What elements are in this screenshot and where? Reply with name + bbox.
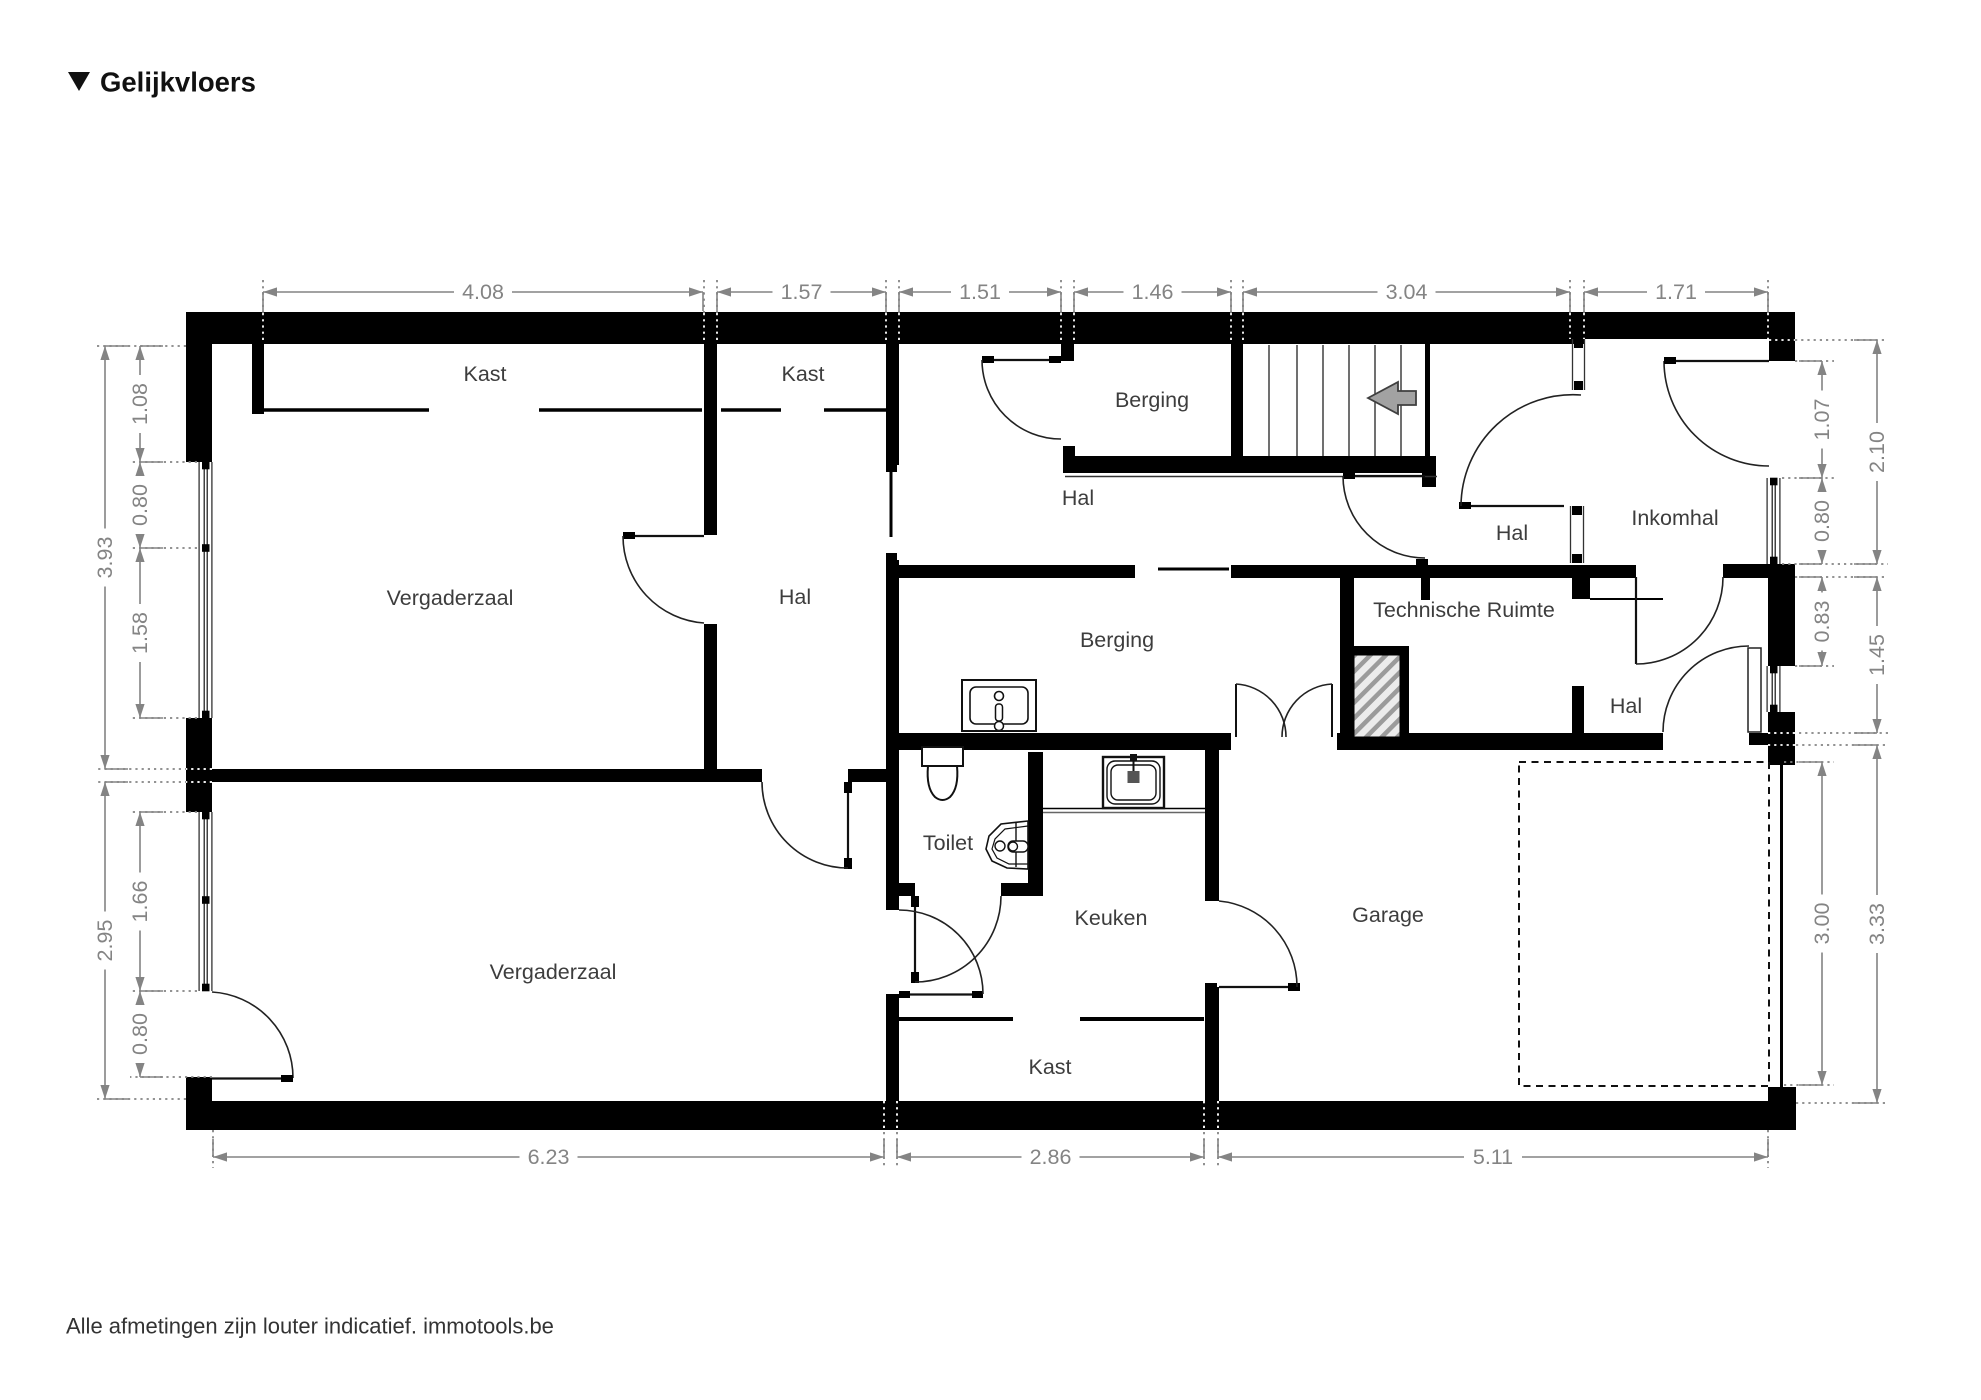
svg-text:0.80: 0.80	[1810, 500, 1834, 542]
svg-text:3.00: 3.00	[1810, 903, 1834, 945]
svg-text:1.45: 1.45	[1865, 634, 1889, 676]
svg-text:1.07: 1.07	[1810, 399, 1834, 441]
svg-text:3.33: 3.33	[1865, 903, 1889, 945]
svg-text:3.04: 3.04	[1386, 280, 1428, 304]
svg-text:Kast: Kast	[1028, 1055, 1071, 1079]
svg-text:Hal: Hal	[1610, 694, 1642, 718]
svg-text:Vergaderzaal: Vergaderzaal	[490, 960, 617, 984]
svg-text:2.10: 2.10	[1865, 431, 1889, 473]
svg-text:4.08: 4.08	[462, 280, 504, 304]
svg-text:Garage: Garage	[1352, 903, 1424, 927]
svg-text:Gelijkvloers: Gelijkvloers	[100, 67, 256, 98]
svg-text:1.08: 1.08	[128, 383, 152, 425]
svg-text:Kast: Kast	[781, 362, 824, 386]
svg-text:1.66: 1.66	[128, 881, 152, 923]
svg-text:3.93: 3.93	[93, 537, 117, 579]
svg-text:Hal: Hal	[1062, 486, 1094, 510]
svg-text:0.80: 0.80	[128, 1013, 152, 1055]
svg-text:1.58: 1.58	[128, 612, 152, 654]
svg-text:1.46: 1.46	[1132, 280, 1174, 304]
svg-text:Toilet: Toilet	[923, 831, 973, 855]
svg-text:Vergaderzaal: Vergaderzaal	[387, 586, 514, 610]
svg-text:2.86: 2.86	[1030, 1145, 1072, 1169]
svg-text:Keuken: Keuken	[1075, 906, 1148, 930]
svg-text:Berging: Berging	[1080, 628, 1154, 652]
svg-text:Inkomhal: Inkomhal	[1631, 506, 1718, 530]
svg-text:0.83: 0.83	[1810, 601, 1834, 643]
svg-text:5.11: 5.11	[1473, 1145, 1513, 1169]
svg-text:1.57: 1.57	[781, 280, 823, 304]
svg-text:0.80: 0.80	[128, 484, 152, 526]
svg-text:Berging: Berging	[1115, 388, 1189, 412]
svg-text:2.95: 2.95	[93, 920, 117, 962]
svg-text:Kast: Kast	[463, 362, 506, 386]
svg-text:1.51: 1.51	[959, 280, 1001, 304]
svg-text:Hal: Hal	[1496, 521, 1528, 545]
svg-text:Alle afmetingen zijn louter in: Alle afmetingen zijn louter indicatief. …	[66, 1314, 554, 1339]
svg-text:1.71: 1.71	[1655, 280, 1697, 304]
svg-text:Technische Ruimte: Technische Ruimte	[1373, 598, 1555, 622]
svg-text:Hal: Hal	[779, 585, 811, 609]
svg-text:6.23: 6.23	[528, 1145, 570, 1169]
